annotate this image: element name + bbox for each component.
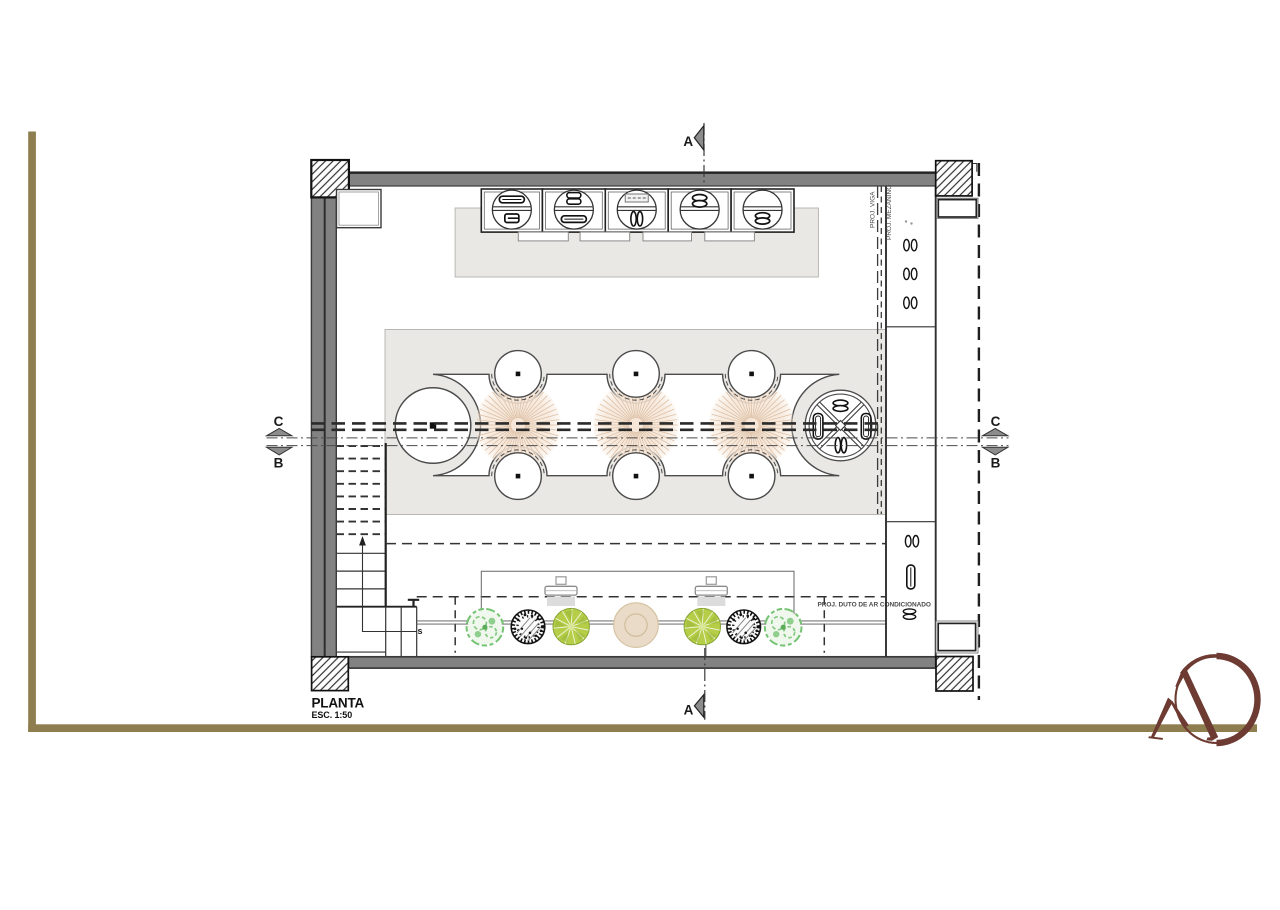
svg-text:PLANTA: PLANTA [312, 696, 365, 711]
svg-text:PROJ. MEZANINO: PROJ. MEZANINO [886, 185, 893, 240]
svg-text:C: C [991, 414, 1001, 429]
svg-text:A: A [684, 702, 694, 717]
svg-text:C: C [274, 414, 284, 429]
svg-text:ESC. 1:50: ESC. 1:50 [312, 710, 353, 720]
svg-text:A: A [683, 134, 693, 149]
svg-text:PROJ. VIGA: PROJ. VIGA [870, 191, 877, 228]
svg-text:B: B [274, 456, 284, 471]
svg-text:B: B [991, 456, 1001, 471]
svg-text:PROJ. DUTO DE AR CONDICIONADO: PROJ. DUTO DE AR CONDICIONADO [818, 602, 931, 609]
svg-text:s: s [418, 626, 423, 636]
